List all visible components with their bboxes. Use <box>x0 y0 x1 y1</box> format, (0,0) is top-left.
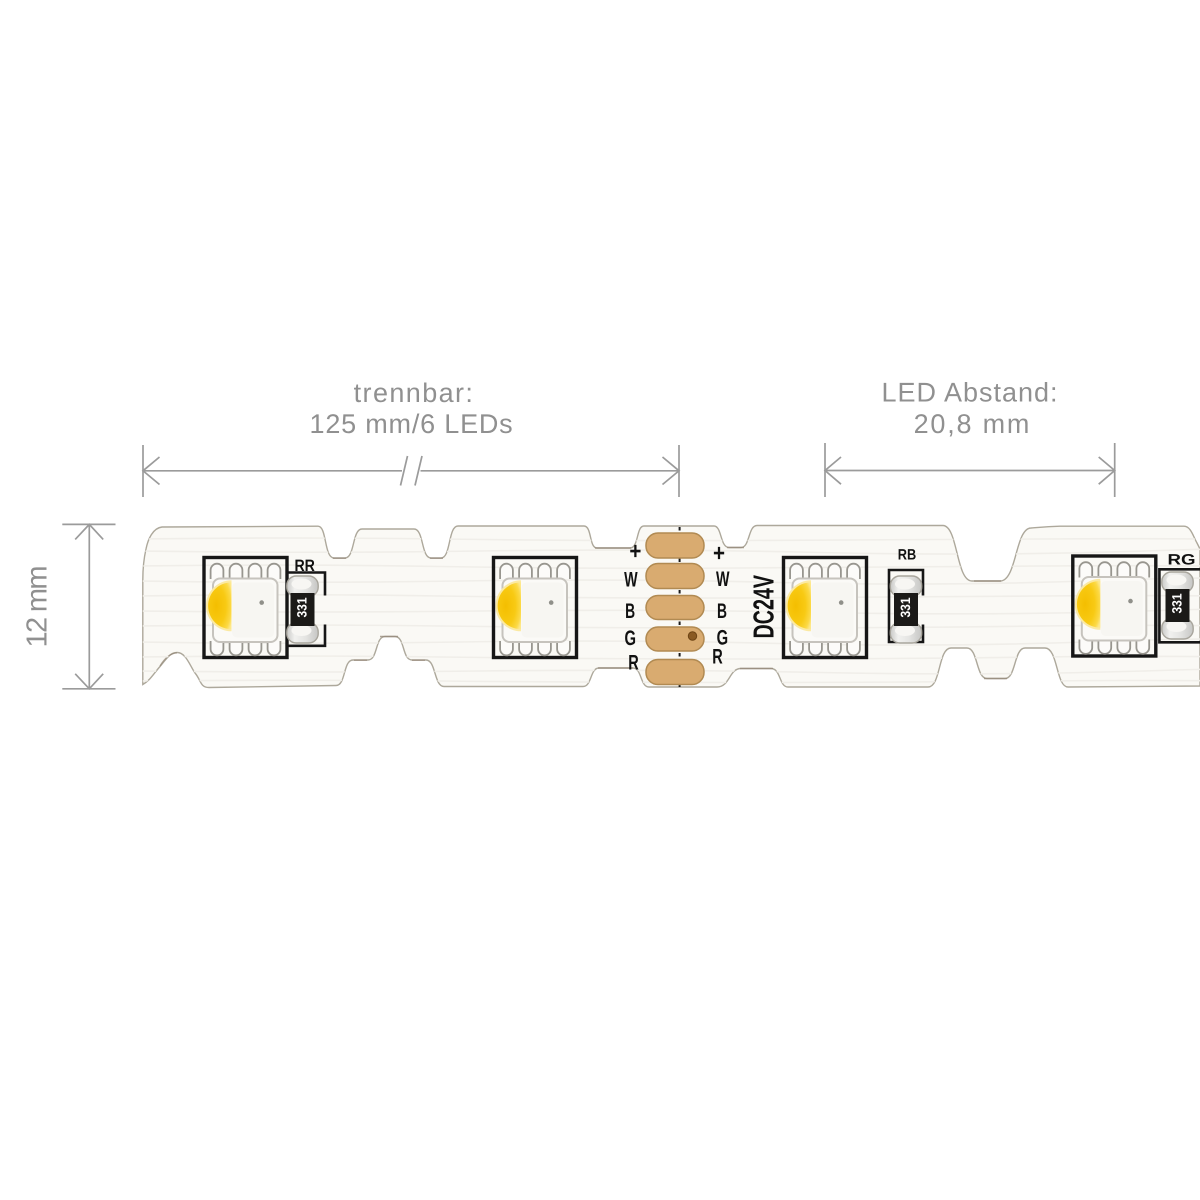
svg-text:LED Abstand:: LED Abstand: <box>881 378 1058 408</box>
svg-text:20,8 mm: 20,8 mm <box>914 409 1032 439</box>
svg-text:G: G <box>624 627 636 650</box>
svg-text:+: + <box>713 540 725 567</box>
svg-text:B: B <box>717 600 727 623</box>
svg-text:+: + <box>629 538 641 565</box>
svg-text:RB: RB <box>898 547 917 564</box>
svg-text:W: W <box>716 568 730 591</box>
svg-text:12 mm: 12 mm <box>22 566 54 648</box>
svg-text:trennbar:: trennbar: <box>354 378 475 408</box>
svg-text:RR: RR <box>294 557 315 575</box>
svg-text:R: R <box>712 646 723 669</box>
svg-text:R: R <box>628 651 639 674</box>
svg-text:W: W <box>624 568 638 591</box>
svg-text:DC24V: DC24V <box>749 575 781 639</box>
svg-text:125 mm/6 LEDs: 125 mm/6 LEDs <box>310 409 514 439</box>
svg-text:RG: RG <box>1168 552 1196 569</box>
svg-text:B: B <box>625 600 635 623</box>
